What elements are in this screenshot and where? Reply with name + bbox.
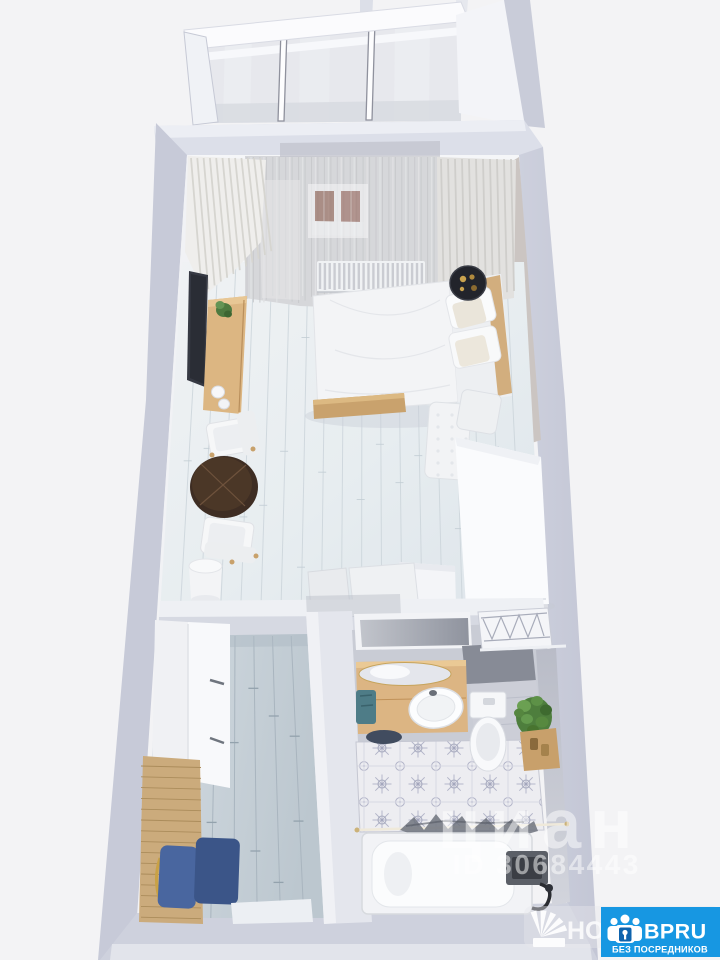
- svg-text:БЕЗ ПОСРЕДНИКОВ: БЕЗ ПОСРЕДНИКОВ: [612, 945, 708, 955]
- svg-text:BPRU: BPRU: [644, 920, 707, 944]
- svg-text:НО: НО: [567, 917, 605, 945]
- svg-text:ID 30684443: ID 30684443: [453, 849, 641, 880]
